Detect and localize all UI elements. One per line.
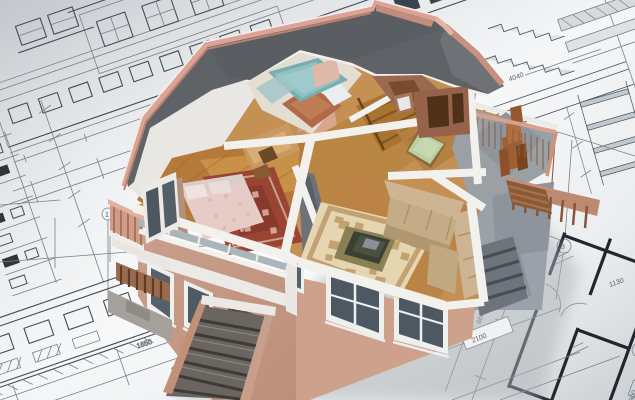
- svg-text:1: 1: [105, 212, 109, 219]
